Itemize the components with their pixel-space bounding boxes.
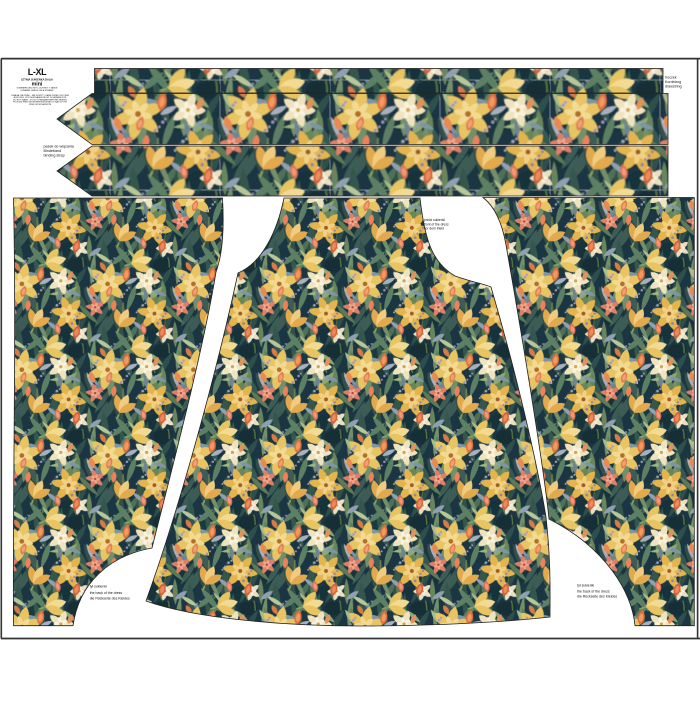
svg-text:mini: mini	[32, 82, 43, 88]
svg-text:SUMMER DRESS ON A STRAND: SUMMER DRESS ON A STRAND	[20, 89, 54, 92]
svg-text:the back of the dress: the back of the dress	[577, 589, 610, 593]
svg-text:L-XL: L-XL	[28, 67, 47, 77]
svg-text:die Rückseite des Kleides: die Rückseite des Kleides	[90, 597, 130, 601]
svg-text:die Rückseite des Kleides: die Rückseite des Kleides	[577, 594, 617, 598]
svg-text:drawstring: drawstring	[665, 85, 682, 89]
svg-text:Kordelzug: Kordelzug	[665, 80, 681, 84]
svg-text:troczek: troczek	[665, 76, 677, 80]
svg-text:Bindeband: Bindeband	[44, 149, 62, 153]
svg-text:tył sukienki: tył sukienki	[90, 585, 107, 589]
svg-text:binding strap: binding strap	[44, 153, 65, 157]
svg-text:PRED SITIM NEPERTE: PRED SITIM NEPERTE	[29, 104, 52, 106]
svg-text:vor dem Kleid: vor dem Kleid	[424, 227, 444, 231]
svg-text:tył sukienki: tył sukienki	[577, 584, 594, 588]
svg-text:the back of the dress: the back of the dress	[90, 591, 123, 595]
svg-text:pasek do wiązania: pasek do wiązania	[44, 144, 75, 148]
